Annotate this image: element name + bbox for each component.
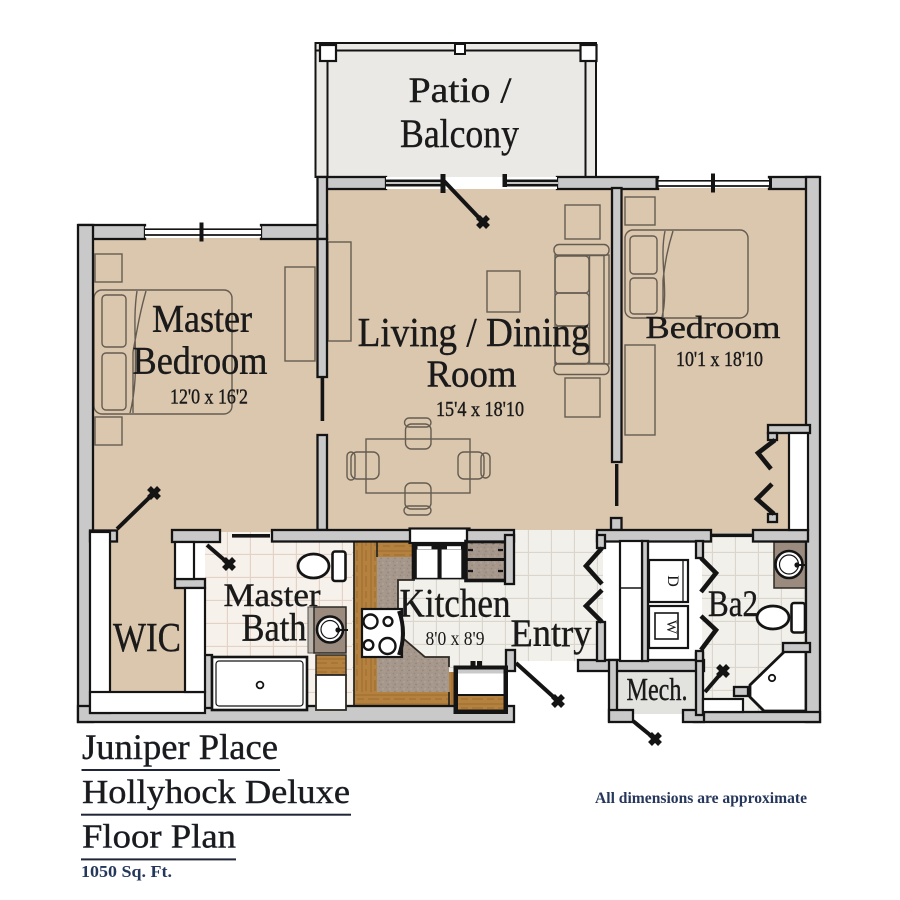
svg-text:1050 Sq. Ft.: 1050 Sq. Ft. [81,862,172,881]
svg-text:Ba2: Ba2 [708,584,758,625]
svg-text:15'4 x 18'10: 15'4 x 18'10 [436,397,524,421]
svg-text:D: D [664,575,681,587]
svg-text:Hollyhock Deluxe: Hollyhock Deluxe [82,774,350,811]
svg-text:Floor Plan: Floor Plan [82,819,236,856]
svg-text:Living / Dining: Living / Dining [358,309,590,355]
svg-text:Patio /: Patio / [409,70,512,110]
svg-text:12'0 x 16'2: 12'0 x 16'2 [170,385,248,409]
svg-text:All dimensions are approximate: All dimensions are approximate [595,790,807,807]
svg-text:W: W [663,620,679,635]
svg-text:WIC: WIC [113,614,181,660]
svg-text:Bedroom: Bedroom [646,309,781,345]
svg-text:8'0 x 8'9: 8'0 x 8'9 [426,628,485,650]
svg-text:Entry: Entry [511,612,592,655]
svg-text:Master: Master [152,298,252,341]
svg-text:Bedroom: Bedroom [133,340,268,383]
svg-text:Juniper Place: Juniper Place [82,727,278,767]
svg-text:Kitchen: Kitchen [400,581,511,626]
svg-text:Bath: Bath [242,607,307,650]
svg-text:Room: Room [427,354,517,396]
svg-text:Balcony: Balcony [400,111,519,156]
svg-text:Mech.: Mech. [627,671,688,707]
svg-text:10'1 x 18'10: 10'1 x 18'10 [676,347,763,371]
